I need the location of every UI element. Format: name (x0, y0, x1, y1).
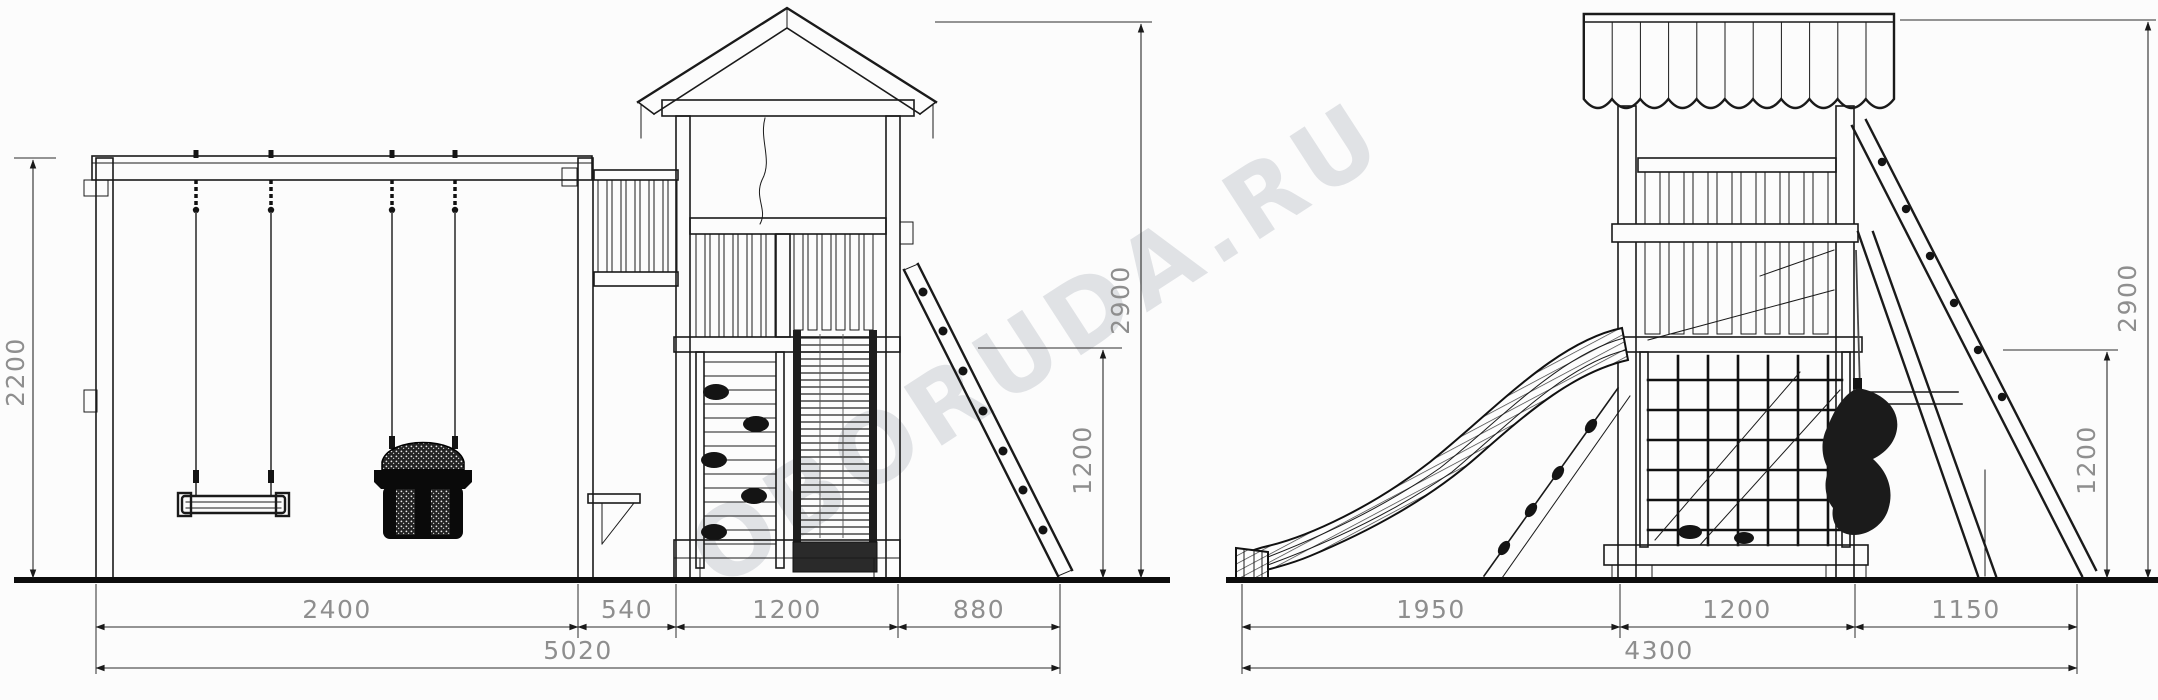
net-grid-side (1640, 352, 1850, 547)
post-bracket (900, 222, 913, 244)
dim-side-seg-2: 1150 (1931, 595, 2001, 624)
watermark-text: OBORUDA.RU (670, 79, 1404, 610)
swing-hanger-icon (389, 150, 458, 213)
platform-railing-front (594, 170, 678, 286)
dim-side-seg-0: 1950 (1396, 595, 1466, 624)
slide-end-roll (1236, 548, 1268, 578)
dim-front-total-width: 5020 (543, 636, 613, 665)
swing-flat-seat (178, 150, 289, 516)
rock-hold (701, 524, 727, 540)
ladder-rail (1866, 120, 2096, 570)
swing-seat-board (182, 496, 285, 513)
slide-body (1238, 328, 1628, 576)
dim-side-platform-height: 1200 (2072, 425, 2101, 495)
rope-detail (759, 118, 766, 224)
dim-front-platform-height: 1200 (1068, 425, 1097, 495)
side-view: 2900 1200 1950 1200 1150 4300 (1226, 14, 2158, 674)
swing-bucket-seat (374, 150, 472, 539)
swing-hanger-icon (193, 150, 274, 213)
tower-post-right (886, 116, 900, 578)
playground-drawing: OBORUDA.RU (0, 0, 2158, 700)
rock-hold (1522, 501, 1539, 520)
bench (588, 494, 640, 544)
post-bracket (84, 390, 97, 412)
swing-frame-left-post (96, 158, 113, 578)
rock-hold (703, 384, 729, 400)
tower-slats (696, 234, 873, 337)
dim-front-seg-2: 1200 (752, 595, 822, 624)
rock-hold (743, 416, 769, 432)
roof-beam (662, 100, 914, 116)
swing-beam-end (1612, 224, 1858, 242)
awning-roof (1584, 14, 1894, 108)
platform-floor-side (1608, 337, 1862, 352)
rock-hold (741, 488, 767, 504)
tower-side (1604, 106, 1868, 578)
dim-side-total-width: 4300 (1624, 636, 1694, 665)
side-dimensions: 2900 1200 1950 1200 1150 4300 (1242, 20, 2156, 674)
dim-front-seg-1: 540 (601, 595, 653, 624)
front-dimensions: 2200 2900 1200 2400 540 1200 880 5020 (1, 22, 1152, 674)
bucket-body (383, 486, 463, 539)
dim-side-total-height: 2900 (2113, 263, 2142, 333)
railing-side (1638, 158, 1836, 334)
foot-pad (1826, 565, 1866, 578)
slide (1236, 328, 1628, 578)
technical-drawing-sheet: OBORUDA.RU (0, 0, 2158, 700)
swing-frame (84, 156, 593, 578)
mid-rail (690, 218, 886, 234)
dim-front-swing-height: 2200 (1, 337, 30, 407)
a-frame-and-ladder-side (1822, 120, 2096, 576)
tower-base-side (1604, 545, 1868, 565)
swing-frame-middle-post (578, 158, 593, 578)
dim-front-seg-0: 2400 (302, 595, 372, 624)
rock-hold (1582, 417, 1599, 436)
beam-bracket-middle (562, 168, 577, 186)
gable-roof (638, 8, 936, 138)
swing-frame-top-beam (92, 156, 592, 180)
rock-hold (1495, 539, 1512, 558)
dim-front-seg-3: 880 (953, 595, 1005, 624)
dim-front-total-height: 2900 (1106, 265, 1135, 335)
rock-hold (701, 452, 727, 468)
dim-side-seg-1: 1200 (1702, 595, 1772, 624)
